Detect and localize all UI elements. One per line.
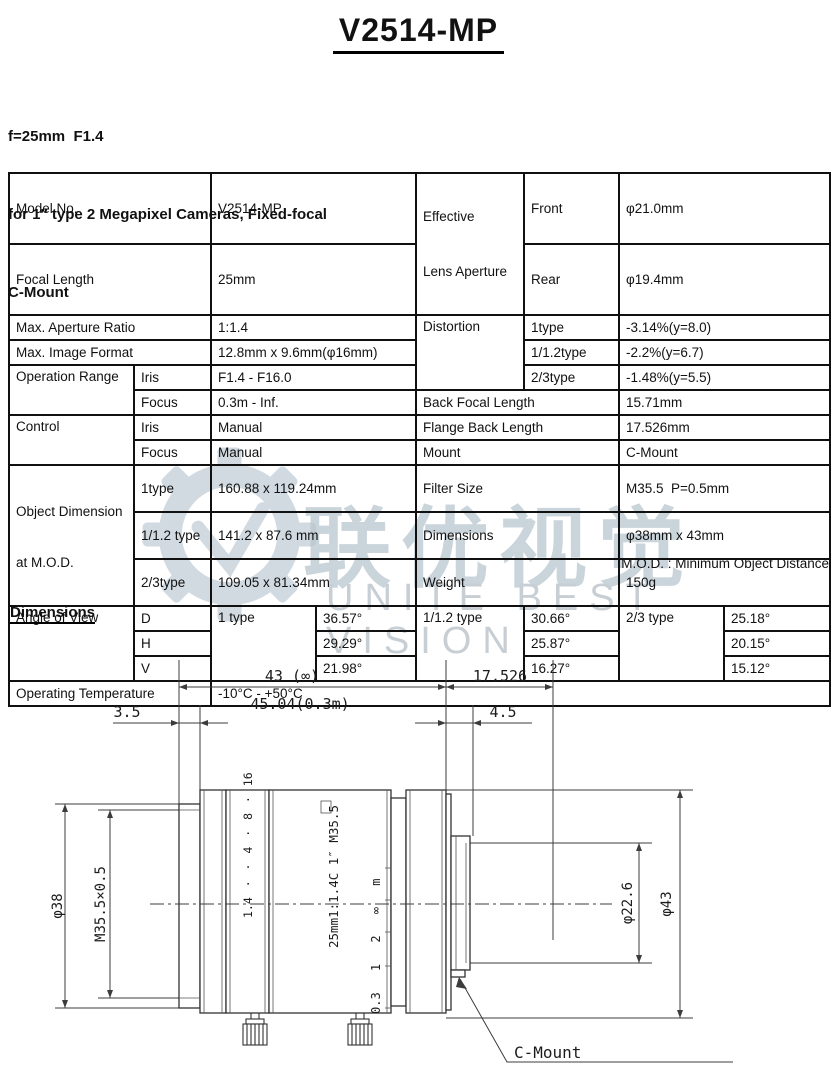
mod-note: M.O.D. : Minimum Object Distance	[0, 556, 829, 571]
dim-mount-diameter: φ43	[659, 891, 675, 916]
label-distortion-1type: 1type	[524, 315, 619, 340]
dim-flange-back: 17.526	[473, 667, 527, 685]
label-objdim-112type: 1/1.2 type	[134, 512, 211, 559]
label-object-dimension: Object Dimension at M.O.D.	[9, 465, 134, 606]
value-distortion-112type: -2.2%(y=6.7)	[619, 340, 830, 365]
neck-section	[391, 798, 406, 1006]
label-distortion-23type: 2/3type	[524, 365, 619, 390]
value-control-iris: Manual	[211, 415, 416, 440]
label-distortion: Distortion	[416, 315, 524, 390]
value-aov-d-112type: 30.66°	[524, 606, 619, 631]
value-flange-back-length: 17.526mm	[619, 415, 830, 440]
table-row: Control Iris Manual Flange Back Length 1…	[9, 415, 830, 440]
label-effective: Effective	[423, 204, 519, 229]
value-distortion-1type: -3.14%(y=8.0)	[619, 315, 830, 340]
c-mount-leader: C-Mount	[456, 977, 733, 1062]
label-max-image-format: Max. Image Format	[9, 340, 211, 365]
filter-thread-stub	[179, 804, 200, 1008]
label-operation-iris: Iris	[134, 365, 211, 390]
table-row: Max. Aperture Ratio 1:1.4 Distortion 1ty…	[9, 315, 830, 340]
label-lens-aperture: Lens Aperture	[423, 259, 519, 284]
label-distortion-112type: 1/1.2type	[524, 340, 619, 365]
label-max-aperture-ratio: Max. Aperture Ratio	[9, 315, 211, 340]
dim-rear-length: 4.5	[489, 703, 516, 721]
label-dimensions: Dimensions	[416, 512, 619, 559]
value-aov-d-1type: 36.57°	[316, 606, 416, 631]
label-object-dimension-line1: Object Dimension	[16, 503, 129, 520]
lens-technical-drawing: C-Mount 43 (∞) 45.04(0.3m) 17.526 3.5 4.…	[0, 630, 837, 1082]
c-mount-callout-label: C-Mount	[514, 1043, 581, 1062]
focus-scale-marking: 0.3 1 2 ∞ m	[369, 879, 383, 1014]
value-max-image-format: 12.8mm x 9.6mm(φ16mm)	[211, 340, 416, 365]
label-filter-size: Filter Size	[416, 465, 619, 512]
value-control-focus: Manual	[211, 440, 416, 465]
dimensions-heading: Dimensions	[10, 604, 95, 624]
table-row: Model No. V2514-MP Effective Lens Apertu…	[9, 173, 830, 244]
value-back-focal-length: 15.71mm	[619, 390, 830, 415]
value-operation-iris: F1.4 - F16.0	[211, 365, 416, 390]
label-objdim-1type: 1type	[134, 465, 211, 512]
lens-body-outline	[179, 790, 470, 1013]
label-back-focal-length: Back Focal Length	[416, 390, 619, 415]
value-front-aperture: φ21.0mm	[619, 173, 830, 244]
value-aov-d-23type: 25.18°	[724, 606, 830, 631]
iris-lock-screw	[243, 1013, 267, 1045]
summary-line-focal: f=25mm F1.4	[8, 124, 327, 150]
dim-front-diameter: φ38	[50, 893, 66, 918]
aperture-scale-marking: 1.4 · · 4 · 8 · 16	[241, 772, 255, 918]
value-dimensions: φ38mm x 43mm	[619, 512, 830, 559]
value-max-aperture-ratio: 1:1.4	[211, 315, 416, 340]
value-filter-size: M35.5 P=0.5mm	[619, 465, 830, 512]
focus-lock-screw	[348, 1013, 372, 1045]
value-rear-aperture: φ19.4mm	[619, 244, 830, 315]
label-model-no: Model No.	[9, 173, 211, 244]
rear-flange-plate	[446, 794, 451, 1010]
table-row: Angle of View D 1 type 36.57° 1/1.2 type…	[9, 606, 830, 631]
value-objdim-112type: 141.2 x 87.6 mm	[211, 512, 416, 559]
barrel-marking: 25mm1:1.4C 1″ M35.5	[326, 805, 341, 948]
label-effective-lens-aperture: Effective Lens Aperture	[416, 173, 524, 315]
dim-length-infinity: 43 (∞)	[265, 667, 319, 685]
label-focal-length: Focal Length	[9, 244, 211, 315]
dim-front-protrusion: 3.5	[113, 703, 140, 721]
datasheet-page: 联优视觉 UNITE BEST VISION V2514-MP f=25mm F…	[0, 0, 837, 1082]
value-objdim-1type: 160.88 x 119.24mm	[211, 465, 416, 512]
value-focal-length: 25mm	[211, 244, 416, 315]
label-control-iris: Iris	[134, 415, 211, 440]
c-mount-thread-notch	[451, 970, 465, 977]
label-mount: Mount	[416, 440, 619, 465]
spec-table: Model No. V2514-MP Effective Lens Apertu…	[8, 172, 831, 707]
c-mount-cylinder	[451, 836, 470, 970]
leader-arrow-icon	[456, 977, 467, 989]
label-control: Control	[9, 415, 134, 465]
page-title: V2514-MP	[333, 12, 504, 54]
dim-filter-thread: M35.5×0.5	[93, 866, 109, 942]
value-model-no: V2514-MP	[211, 173, 416, 244]
dim-rear-diameter: φ22.6	[620, 882, 636, 924]
rear-ring	[406, 790, 446, 1013]
label-operation-range: Operation Range	[9, 365, 134, 415]
value-operation-focus: 0.3m - Inf.	[211, 390, 416, 415]
label-front: Front	[524, 173, 619, 244]
value-distortion-23type: -1.48%(y=5.5)	[619, 365, 830, 390]
label-operation-focus: Focus	[134, 390, 211, 415]
value-mount: C-Mount	[619, 440, 830, 465]
dim-length-03m: 45.04(0.3m)	[250, 695, 349, 713]
table-row: Object Dimension at M.O.D. 1type 160.88 …	[9, 465, 830, 512]
label-flange-back-length: Flange Back Length	[416, 415, 619, 440]
label-control-focus: Focus	[134, 440, 211, 465]
label-aov-d: D	[134, 606, 211, 631]
label-rear: Rear	[524, 244, 619, 315]
spec-table-wrap: Model No. V2514-MP Effective Lens Apertu…	[8, 172, 831, 707]
